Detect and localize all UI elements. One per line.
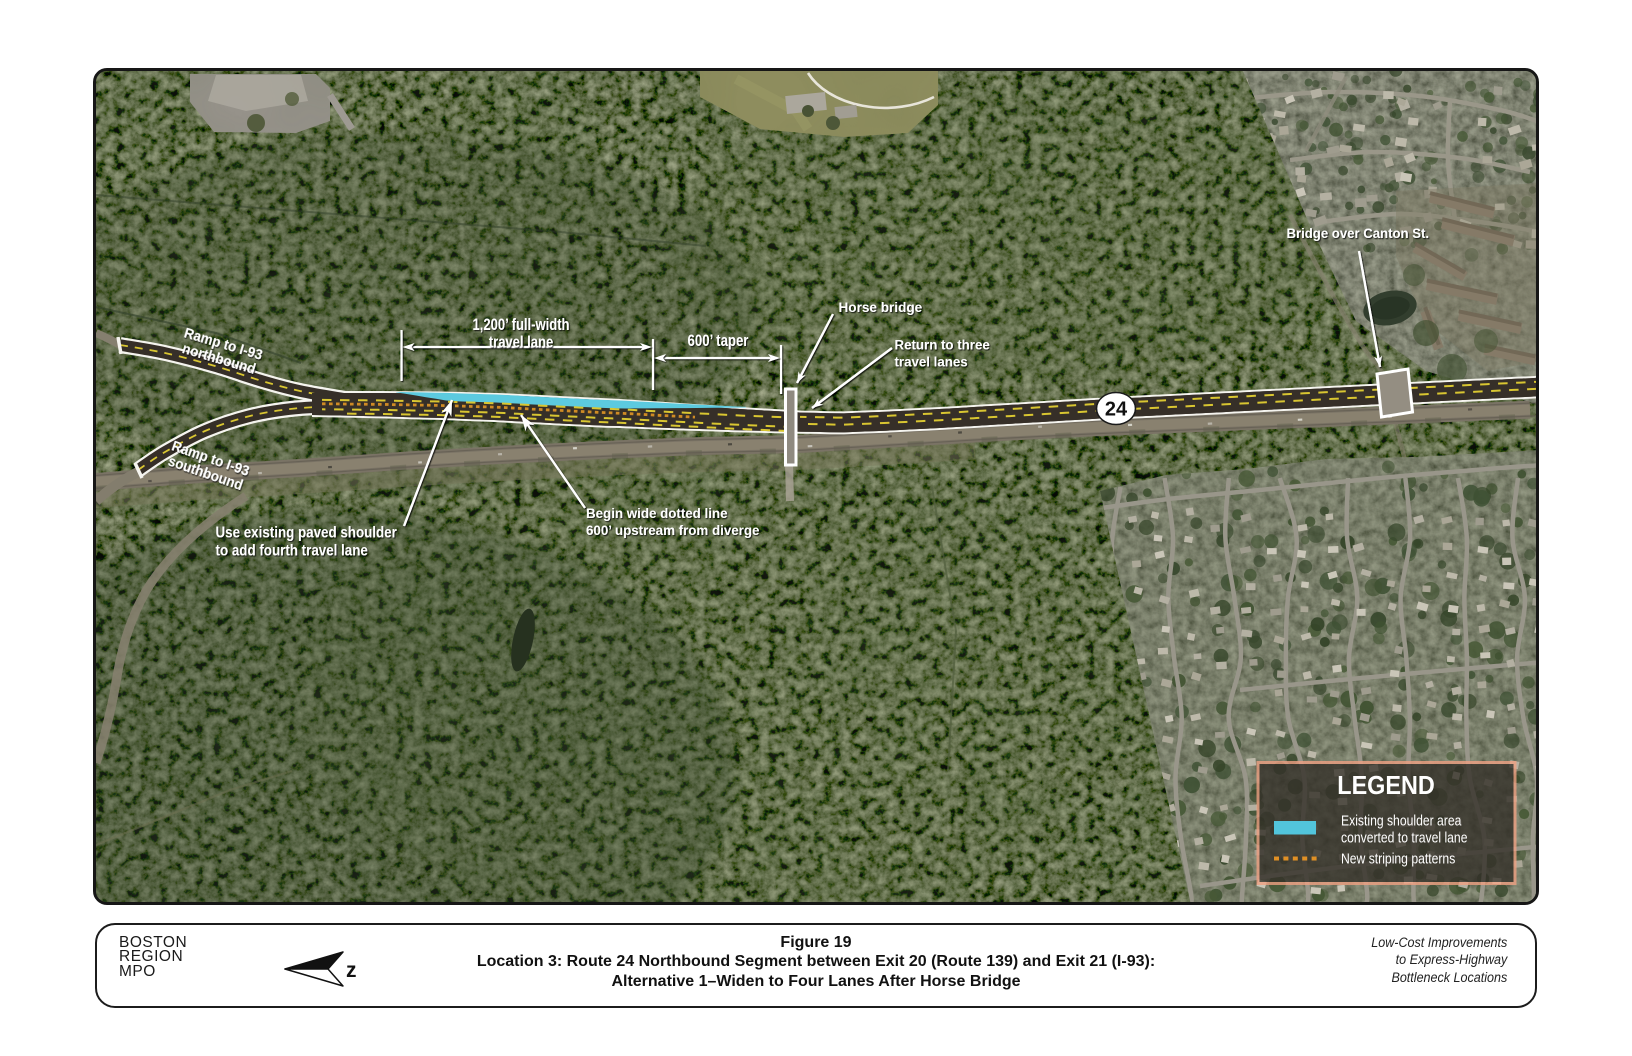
svg-text:Begin wide dotted line: Begin wide dotted line (586, 506, 728, 521)
svg-text:travel lanes: travel lanes (895, 354, 969, 369)
svg-text:Use existing paved shoulder: Use existing paved shoulder (216, 525, 398, 542)
svg-text:600’ taper: 600’ taper (688, 332, 749, 351)
svg-text:600’ upstream from diverge: 600’ upstream from diverge (586, 523, 760, 538)
svg-text:New striping patterns: New striping patterns (1341, 851, 1456, 867)
svg-text:Horse bridge: Horse bridge (839, 300, 923, 315)
svg-text:LEGEND: LEGEND (1337, 772, 1434, 800)
svg-text:Return to three: Return to three (895, 337, 991, 352)
svg-text:Bridge over Canton St.: Bridge over Canton St. (1287, 226, 1430, 241)
svg-text:travel lane: travel lane (489, 334, 553, 352)
svg-text:1,200’ full-width: 1,200’ full-width (473, 317, 570, 335)
svg-text:Existing shoulder area: Existing shoulder area (1341, 813, 1462, 829)
svg-text:to add fourth travel lane: to add fourth travel lane (216, 543, 368, 560)
svg-text:converted to travel lane: converted to travel lane (1341, 830, 1467, 846)
